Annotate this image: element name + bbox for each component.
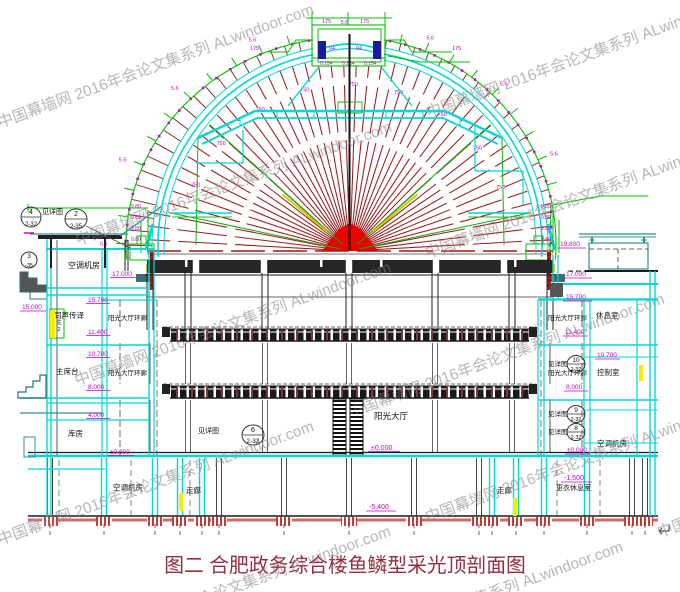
svg-text:94: 94: [329, 46, 335, 52]
svg-text:750: 750: [217, 141, 226, 147]
svg-text:同声传译: 同声传译: [54, 310, 84, 320]
svg-text:5.6: 5.6: [119, 157, 127, 163]
svg-text:图二 合肥政务综合楼鱼鳞型采光顶剖面图: 图二 合肥政务综合楼鱼鳞型采光顶剖面图: [164, 555, 526, 577]
svg-text:控制室: 控制室: [597, 367, 620, 377]
svg-text:0.154: 0.154: [320, 61, 333, 67]
svg-text:175: 175: [360, 19, 369, 25]
svg-text:见详图: 见详图: [548, 427, 568, 436]
svg-text:-1.500: -1.500: [564, 475, 584, 482]
svg-text:库房: 库房: [68, 428, 83, 438]
svg-text:2-32: 2-32: [570, 417, 581, 423]
svg-text:2-32: 2-32: [25, 222, 38, 228]
svg-text:0.154: 0.154: [364, 61, 377, 67]
svg-text:更衣休息室: 更衣休息室: [556, 483, 591, 492]
svg-text:4: 4: [29, 209, 33, 216]
svg-text:5.6: 5.6: [100, 241, 108, 247]
svg-text:空调机房: 空调机房: [68, 260, 100, 270]
svg-text:9.80: 9.80: [541, 226, 551, 232]
svg-text:9: 9: [574, 407, 578, 414]
svg-text:2: 2: [74, 211, 78, 218]
svg-text:见详图: 见详图: [548, 409, 568, 418]
svg-text:9.80: 9.80: [541, 237, 551, 243]
svg-text:8: 8: [574, 425, 578, 432]
svg-text:±0.000: ±0.000: [371, 445, 392, 452]
svg-text:-5.400: -5.400: [369, 504, 389, 511]
svg-text:17.000: 17.000: [112, 271, 132, 278]
svg-text:走廊: 走廊: [186, 485, 201, 495]
svg-text:阳光大厅环廊: 阳光大厅环廊: [108, 313, 148, 322]
svg-text:3: 3: [27, 253, 31, 260]
svg-text:-35: -35: [25, 263, 33, 269]
svg-text:阳光大厅环廊: 阳光大厅环廊: [548, 368, 588, 377]
svg-text:175: 175: [452, 46, 461, 52]
svg-text:10.700: 10.700: [88, 351, 108, 358]
svg-text:5.6: 5.6: [171, 86, 179, 92]
svg-text:4.000: 4.000: [88, 412, 105, 419]
svg-text:10: 10: [572, 357, 580, 364]
svg-text:6: 6: [251, 427, 255, 434]
svg-text:15.700: 15.700: [88, 297, 108, 304]
svg-text:19.800: 19.800: [560, 241, 580, 248]
svg-text:94: 94: [356, 46, 362, 52]
svg-text:2-32: 2-32: [570, 367, 581, 373]
svg-text:2-35: 2-35: [70, 224, 83, 230]
svg-text:阳光大厅: 阳光大厅: [374, 411, 409, 421]
svg-text:15.000: 15.000: [22, 304, 42, 311]
svg-text:10.700: 10.700: [597, 352, 617, 359]
svg-text:750: 750: [473, 145, 482, 151]
svg-text:5.6: 5.6: [550, 152, 558, 158]
svg-text:17.000: 17.000: [566, 271, 586, 278]
svg-text:9.80: 9.80: [131, 237, 141, 243]
svg-text:8.000: 8.000: [566, 384, 583, 391]
svg-text:5.6: 5.6: [426, 35, 434, 41]
svg-text:175: 175: [250, 46, 259, 52]
svg-text:11.400: 11.400: [88, 329, 108, 336]
svg-text:见详图: 见详图: [42, 207, 63, 216]
svg-text:750: 750: [496, 185, 505, 191]
svg-text:见详图: 见详图: [548, 359, 568, 368]
svg-text:0.154: 0.154: [342, 61, 355, 67]
svg-text:2-32: 2-32: [570, 435, 581, 441]
svg-text:175: 175: [322, 19, 331, 25]
svg-text:15.700: 15.700: [566, 294, 586, 301]
svg-text:2: 2: [57, 327, 60, 333]
svg-text:见详图: 见详图: [198, 426, 219, 435]
svg-text:±0.000: ±0.000: [110, 449, 130, 456]
